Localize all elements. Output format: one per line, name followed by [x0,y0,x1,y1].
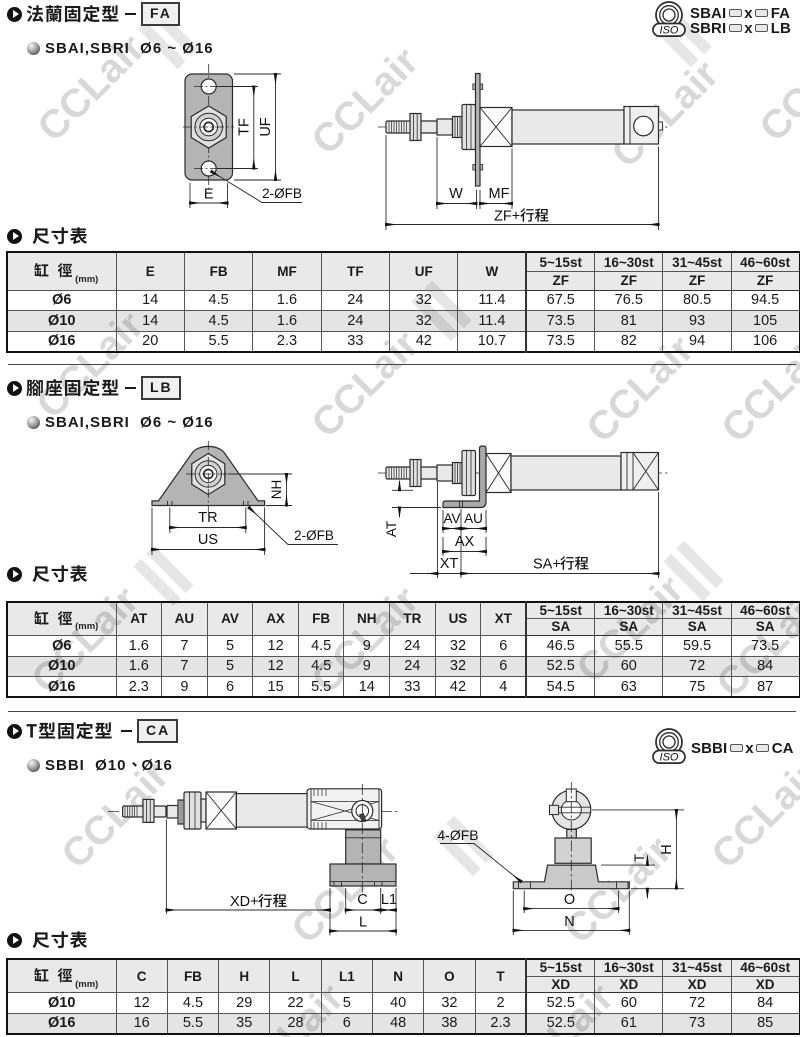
svg-text:ZF+: ZF+ [494,209,520,225]
svg-text:AV: AV [443,511,460,526]
svg-text:TR: TR [198,510,217,526]
svg-text:UF: UF [258,117,274,136]
svg-text:ISO: ISO [660,752,679,764]
svg-text:NH: NH [269,480,284,500]
svg-text:E: E [204,187,214,203]
svg-text:TF: TF [237,118,253,136]
svg-text:XD+: XD+ [230,894,259,910]
svg-text:N: N [564,914,574,930]
svg-text:AU: AU [464,511,483,526]
svg-text:AT: AT [384,521,399,537]
svg-text:XT: XT [440,556,459,572]
svg-text:W: W [449,186,463,202]
svg-text:C: C [357,892,367,908]
svg-text:H: H [659,844,675,854]
svg-text:L1: L1 [381,892,397,908]
svg-text:L: L [359,915,367,931]
svg-text:O: O [564,892,575,908]
svg-text:ISO: ISO [660,25,679,37]
svg-text:4-ØFB: 4-ØFB [437,827,478,843]
svg-text:US: US [198,532,218,548]
svg-text:AX: AX [455,534,475,550]
svg-text:T: T [632,854,647,862]
svg-text:SA+: SA+ [533,557,561,573]
svg-text:MF: MF [489,186,510,202]
svg-text:2-ØFB: 2-ØFB [294,528,334,543]
svg-text:2-ØFB: 2-ØFB [262,186,302,201]
